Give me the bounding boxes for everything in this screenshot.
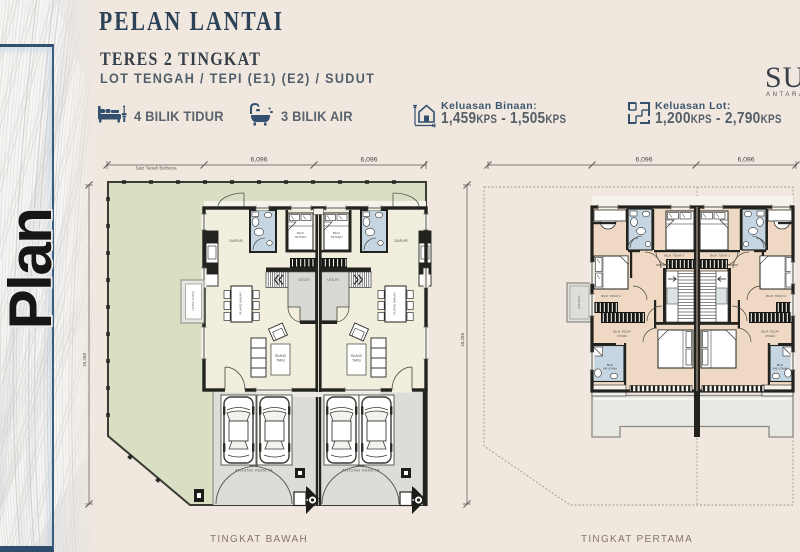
svg-text:DAPUR: DAPUR [229,239,243,243]
svg-text:BILIK: BILIK [777,363,784,367]
svg-text:TETAMU: TETAMU [294,235,306,239]
svg-text:UTAMA: UTAMA [765,334,775,338]
svg-text:BILIK TIDUR 2: BILIK TIDUR 2 [766,294,786,298]
svg-text:Saiz Tanah Berbeza: Saiz Tanah Berbeza [135,166,176,171]
svg-text:6,096: 6,096 [635,157,652,164]
svg-text:6,096: 6,096 [250,157,267,164]
svg-text:BILIK TIDUR: BILIK TIDUR [761,330,779,334]
svg-text:BILIK TIDUR: BILIK TIDUR [613,330,631,334]
svg-text:TAMU: TAMU [276,359,285,363]
svg-text:TAMU: TAMU [352,359,361,363]
svg-text:TETAMU: TETAMU [330,235,342,239]
svg-text:BILIK: BILIK [607,363,614,367]
svg-text:18,288: 18,288 [460,333,465,347]
svg-text:RUANG MAKAN: RUANG MAKAN [239,292,243,314]
svg-text:UTILITI: UTILITI [327,278,338,282]
svg-text:BALKONI: BALKONI [577,295,581,308]
svg-text:AIR UTAMA: AIR UTAMA [603,367,617,371]
svg-text:BILIK TIDUR 3: BILIK TIDUR 3 [710,254,730,258]
svg-text:18,288: 18,288 [82,353,87,367]
svg-text:6,096: 6,096 [737,157,754,164]
svg-text:RUANG: RUANG [275,354,287,358]
svg-text:UTILITI: UTILITI [298,278,309,282]
svg-text:6,096: 6,096 [360,157,377,164]
svg-text:SHE UTAMA: SHE UTAMA [773,367,788,371]
svg-text:Plan: Plan [0,209,64,330]
svg-text:TEMPAT JEMUR: TEMPAT JEMUR [191,291,195,311]
svg-text:UTAMA: UTAMA [617,334,627,338]
svg-text:RUANG: RUANG [351,354,363,358]
svg-text:RUANG MAKAN: RUANG MAKAN [393,292,397,314]
svg-text:BILIK TIDUR 3: BILIK TIDUR 3 [664,254,684,258]
svg-text:BILIK TIDUR 2: BILIK TIDUR 2 [601,294,621,298]
svg-text:DAPUR: DAPUR [394,239,408,243]
